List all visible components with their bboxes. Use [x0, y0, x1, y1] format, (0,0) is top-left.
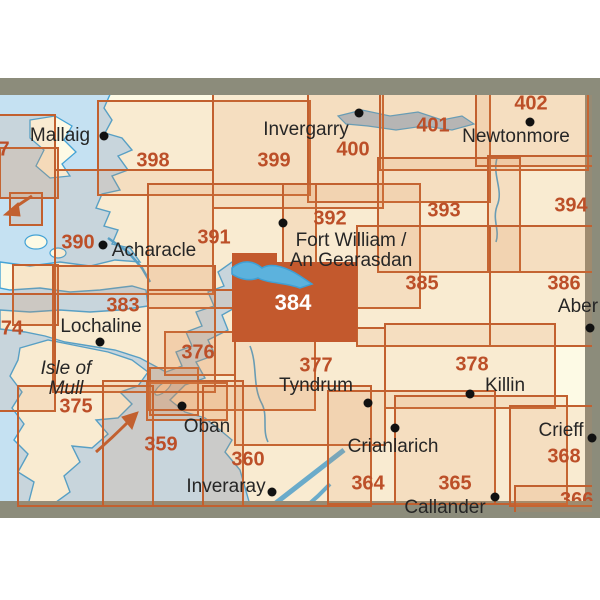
map-canvas — [0, 0, 600, 600]
map-sheet-366[interactable] — [515, 486, 600, 546]
map-index: 7398399400401402390391392393394383385386… — [0, 0, 600, 600]
island-small-1 — [25, 235, 47, 249]
map-sheet-402[interactable] — [476, 78, 600, 166]
map-sheet-7[interactable] — [0, 115, 55, 198]
